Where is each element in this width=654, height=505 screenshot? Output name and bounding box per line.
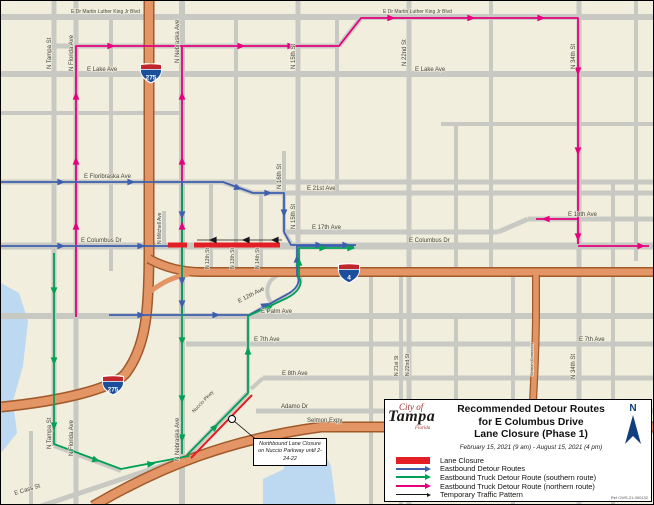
street-label: Selmon Expy <box>307 418 342 424</box>
legend-title-line3: Lane Closure (Phase 1) <box>447 429 615 442</box>
street-label: N 12th St <box>205 248 211 269</box>
street-label: N 34th St <box>571 354 577 379</box>
truck-northern-swatch-icon <box>396 483 432 489</box>
interstate-275-shield-icon: 275 <box>102 375 124 395</box>
street-label: N Florida Ave <box>69 34 75 71</box>
legend-box: City of Tampa Florida Recommended Detour… <box>384 399 652 502</box>
street-label: N Nebraska Ave <box>175 417 181 461</box>
street-label: E 7th Ave <box>579 337 605 343</box>
lane-closure-swatch-icon <box>396 457 432 464</box>
street-label: N 22nd St <box>405 353 411 376</box>
street-label: N Tampa St <box>47 417 53 449</box>
nuccio-closure-callout: Northbound Lane Closure on Nuccio Parkwa… <box>253 438 327 466</box>
street-label: Selmon Connector <box>529 342 534 376</box>
street-label: N 21st St <box>394 355 400 376</box>
street-label: E Dr Martin Luther King Jr Blvd <box>71 9 140 15</box>
legend-title-line2: for E Columbus Drive <box>447 417 615 430</box>
street-label: E Cass St <box>14 483 42 497</box>
legend-items: Lane ClosureEastbound Detour RoutesEastb… <box>396 456 645 499</box>
legend-date-range: February 15, 2021 (9 am) - August 15, 20… <box>447 444 615 451</box>
street-label: E 17th Ave <box>312 225 342 231</box>
legend-item-truck-southern: Eastbound Truck Detour Route (southern r… <box>396 473 645 482</box>
street-label: E Lake Ave <box>87 67 118 73</box>
street-label: E Dr Martin Luther King Jr Blvd <box>383 9 452 15</box>
street-label: Nuccio Pkwy <box>191 389 216 414</box>
street-label: E Floribraska Ave <box>84 174 132 180</box>
legend-item-eastbound-detour: Eastbound Detour Routes <box>396 465 645 474</box>
legend-title-line1: Recommended Detour Routes <box>447 404 615 417</box>
street-label: E 8th Ave <box>282 371 308 377</box>
legend-item-temporary-pattern: Temporary Traffic Pattern <box>396 490 645 499</box>
svg-text:4: 4 <box>347 274 351 281</box>
legend-ref-number: Ref CWS-21-000132 <box>611 495 648 500</box>
street-label: E 12th Ave <box>237 286 266 305</box>
street-label: N 16th St <box>277 164 283 189</box>
detour-map: 2752754 E Dr Martin Luther King Jr BlvdE… <box>0 0 654 505</box>
interstate-4-shield-icon: 4 <box>338 263 360 283</box>
street-label: E 21st Ave <box>307 186 336 192</box>
north-label: N <box>615 404 651 414</box>
truck-southern-swatch-icon <box>396 474 432 480</box>
street-label: N Mitchell Ave <box>157 212 163 244</box>
street-label: N 15th St <box>291 44 297 69</box>
street-label: E Columbus Dr <box>409 238 450 244</box>
temporary-pattern-swatch-icon <box>396 493 432 497</box>
street-label: N Tampa St <box>47 37 53 69</box>
legend-item-truck-northern: Eastbound Truck Detour Route (northern r… <box>396 482 645 491</box>
north-indicator: N <box>615 400 651 451</box>
legend-title-block: Recommended Detour Routes for E Columbus… <box>447 400 615 451</box>
logo-florida: Florida <box>415 426 430 431</box>
street-label: E Lake Ave <box>415 67 446 73</box>
logo-tampa: Tampa <box>388 408 435 426</box>
eastbound-detour-swatch-icon <box>396 466 432 472</box>
street-label: E 18th Ave <box>568 212 598 218</box>
street-label: N 34th St <box>571 44 577 69</box>
city-of-tampa-logo: City of Tampa Florida <box>385 400 447 444</box>
legend-item-label: Temporary Traffic Pattern <box>440 490 523 499</box>
svg-text:275: 275 <box>108 386 119 393</box>
legend-item-lane-closure: Lane Closure <box>396 456 645 465</box>
interstate-275-shield-icon: 275 <box>140 63 162 83</box>
street-label: N 22nd St <box>402 39 408 66</box>
street-label: N Florida Ave <box>69 419 75 456</box>
street-label: E Columbus Dr <box>81 238 122 244</box>
street-label: N Nebraska Ave <box>175 19 181 63</box>
svg-text:275: 275 <box>146 74 157 81</box>
street-label: N 13th St <box>230 248 236 269</box>
street-label: E Palm Ave <box>261 309 293 315</box>
north-arrow-icon <box>620 414 646 446</box>
street-label: Adamo Dr <box>281 404 308 410</box>
street-label: N 14th St <box>255 248 261 269</box>
street-label: E 7th Ave <box>254 337 280 343</box>
street-label: N 15th St <box>291 204 297 229</box>
